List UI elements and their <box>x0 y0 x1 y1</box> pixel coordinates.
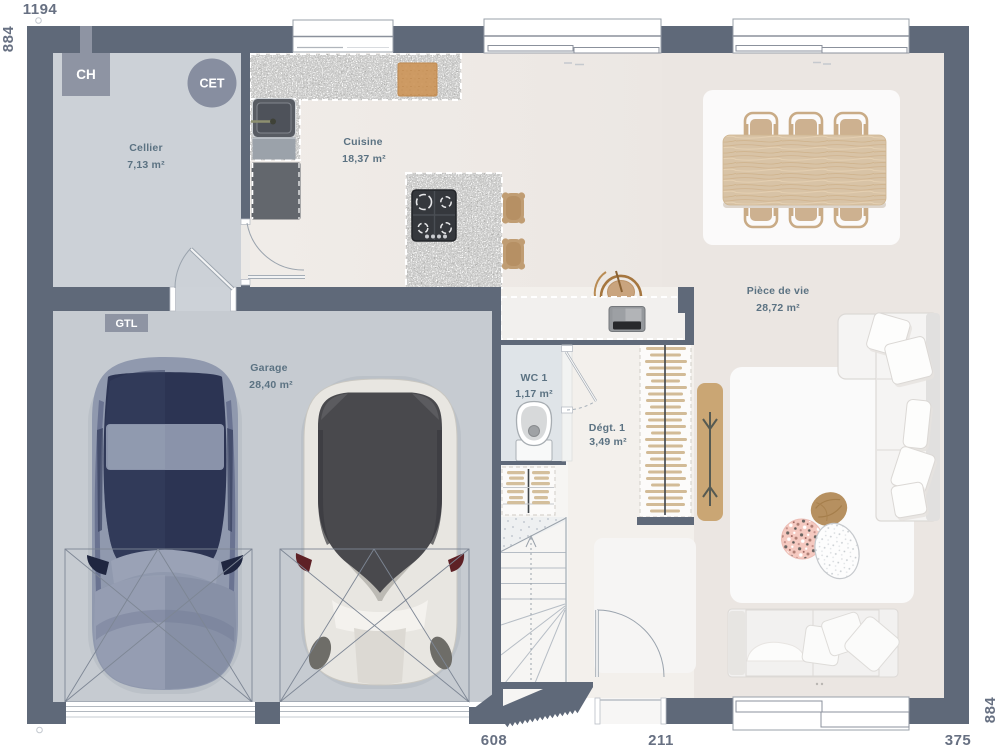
svg-text:884: 884 <box>0 26 17 53</box>
svg-text:1194: 1194 <box>23 1 58 18</box>
svg-text:18,37 m²: 18,37 m² <box>342 153 386 165</box>
svg-text:28,72 m²: 28,72 m² <box>756 302 800 314</box>
svg-text:375: 375 <box>945 732 972 749</box>
svg-text:CET: CET <box>200 77 225 91</box>
svg-text:WC 1: WC 1 <box>520 372 547 384</box>
svg-text:Cellier: Cellier <box>129 142 163 154</box>
svg-text:Cuisine: Cuisine <box>343 136 382 148</box>
svg-text:28,40 m²: 28,40 m² <box>249 379 293 391</box>
svg-text:1,17 m²: 1,17 m² <box>515 388 553 400</box>
svg-text:608: 608 <box>481 732 508 749</box>
svg-text:Garage: Garage <box>250 362 287 374</box>
svg-text:GTL: GTL <box>116 318 138 330</box>
svg-text:3,49 m²: 3,49 m² <box>589 436 627 448</box>
svg-text:7,13 m²: 7,13 m² <box>127 159 165 171</box>
svg-text:Pièce de vie: Pièce de vie <box>747 285 810 297</box>
svg-text:Dégt. 1: Dégt. 1 <box>589 422 625 434</box>
svg-text:884: 884 <box>982 697 999 724</box>
svg-text:CH: CH <box>76 67 96 82</box>
svg-text:211: 211 <box>648 732 674 749</box>
